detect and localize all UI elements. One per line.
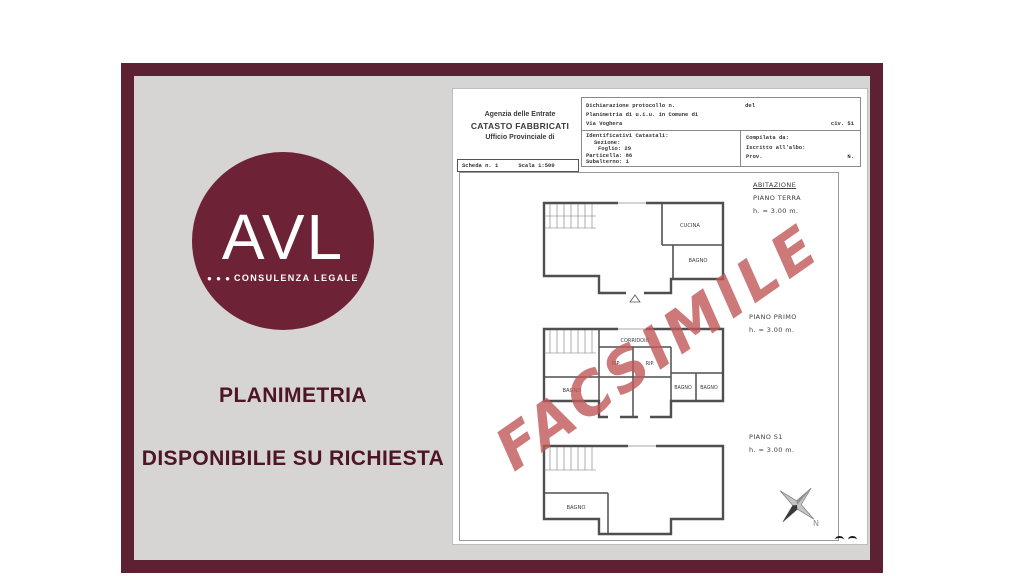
north-label: N: [813, 519, 819, 528]
identifiers-box: Identificativi Catastali: Sezione: Fogli…: [581, 131, 741, 167]
logo-dots-icon: ● ● ●: [207, 274, 231, 283]
logo-acronym: AVL: [222, 205, 344, 269]
sheet-scala: Scala 1:500: [518, 162, 554, 169]
logo-tagline-text: CONSULENZA LEGALE: [234, 273, 359, 283]
corner-mark-icon: [848, 536, 857, 543]
floor-s1-height: h. = 3.00 m.: [749, 444, 795, 457]
room-label-bagno-s1: BAGNO: [567, 505, 586, 511]
agency-header: Agenzia delle Entrate CATASTO FABBRICATI…: [461, 99, 579, 153]
corner-marks: [835, 536, 857, 543]
floor-terra-subtitle: PIANO TERRA: [753, 192, 801, 205]
compiler-n: N.: [847, 152, 854, 162]
logo-tagline: ● ● ● CONSULENZA LEGALE: [207, 273, 359, 283]
room-label-bagno-mid: BAGNO: [674, 385, 692, 391]
floor-primo-height: h. = 3.00 m.: [749, 324, 797, 337]
planimetria-label: PLANIMETRIA: [128, 384, 458, 408]
compiler-box: Compilata da: Iscritto all'albo: Prov. N…: [740, 131, 861, 167]
avl-logo: AVL ● ● ● CONSULENZA LEGALE: [192, 152, 374, 330]
sheet-scheda: Scheda n. 1: [462, 162, 498, 169]
agency-line1: Agenzia delle Entrate: [485, 111, 556, 118]
protocol-box: Dichiarazione protocollo n. del Planimet…: [581, 97, 861, 131]
floorplan-piano-s1: BAGNO: [538, 442, 733, 542]
corner-mark-icon: [835, 536, 844, 543]
cadastral-document: Agenzia delle Entrate CATASTO FABBRICATI…: [452, 88, 868, 545]
protocol-planimetria: Planimetria di u.i.u. in Comune di: [586, 110, 698, 119]
door-gap: [638, 414, 650, 420]
agency-line3: Ufficio Provinciale di: [485, 134, 554, 141]
entrance-arrow-icon: [630, 295, 640, 302]
compiler-iscritto: Iscritto all'albo:: [746, 143, 854, 153]
floor-title-s1: PIANO S1 h. = 3.00 m.: [749, 431, 795, 457]
floor-terra-title: ABITAZIONE: [753, 179, 801, 192]
sheet-info-box: Scheda n. 1 Scala 1:500: [457, 159, 579, 172]
protocol-street: Via Voghera: [586, 119, 622, 128]
floor-s1-title: PIANO S1: [749, 431, 795, 444]
compiler-prov: Prov.: [746, 152, 763, 162]
room-label-bagno-terra: BAGNO: [689, 258, 708, 264]
available-on-request-label: DISPONIBILIE SU RICHIESTA: [128, 447, 458, 471]
protocol-declaration: Dichiarazione protocollo n.: [586, 101, 675, 110]
agency-line2: CATASTO FABBRICATI: [471, 121, 569, 131]
compiler-compilata: Compilata da:: [746, 133, 854, 143]
protocol-del: del: [745, 101, 755, 110]
protocol-civ: civ. 51: [831, 119, 854, 128]
identifiers-subalterno: Subalterno: 1: [586, 159, 736, 166]
room-label-bagno-right: BAGNO: [700, 385, 718, 391]
room-label-cucina: CUCINA: [680, 223, 700, 229]
